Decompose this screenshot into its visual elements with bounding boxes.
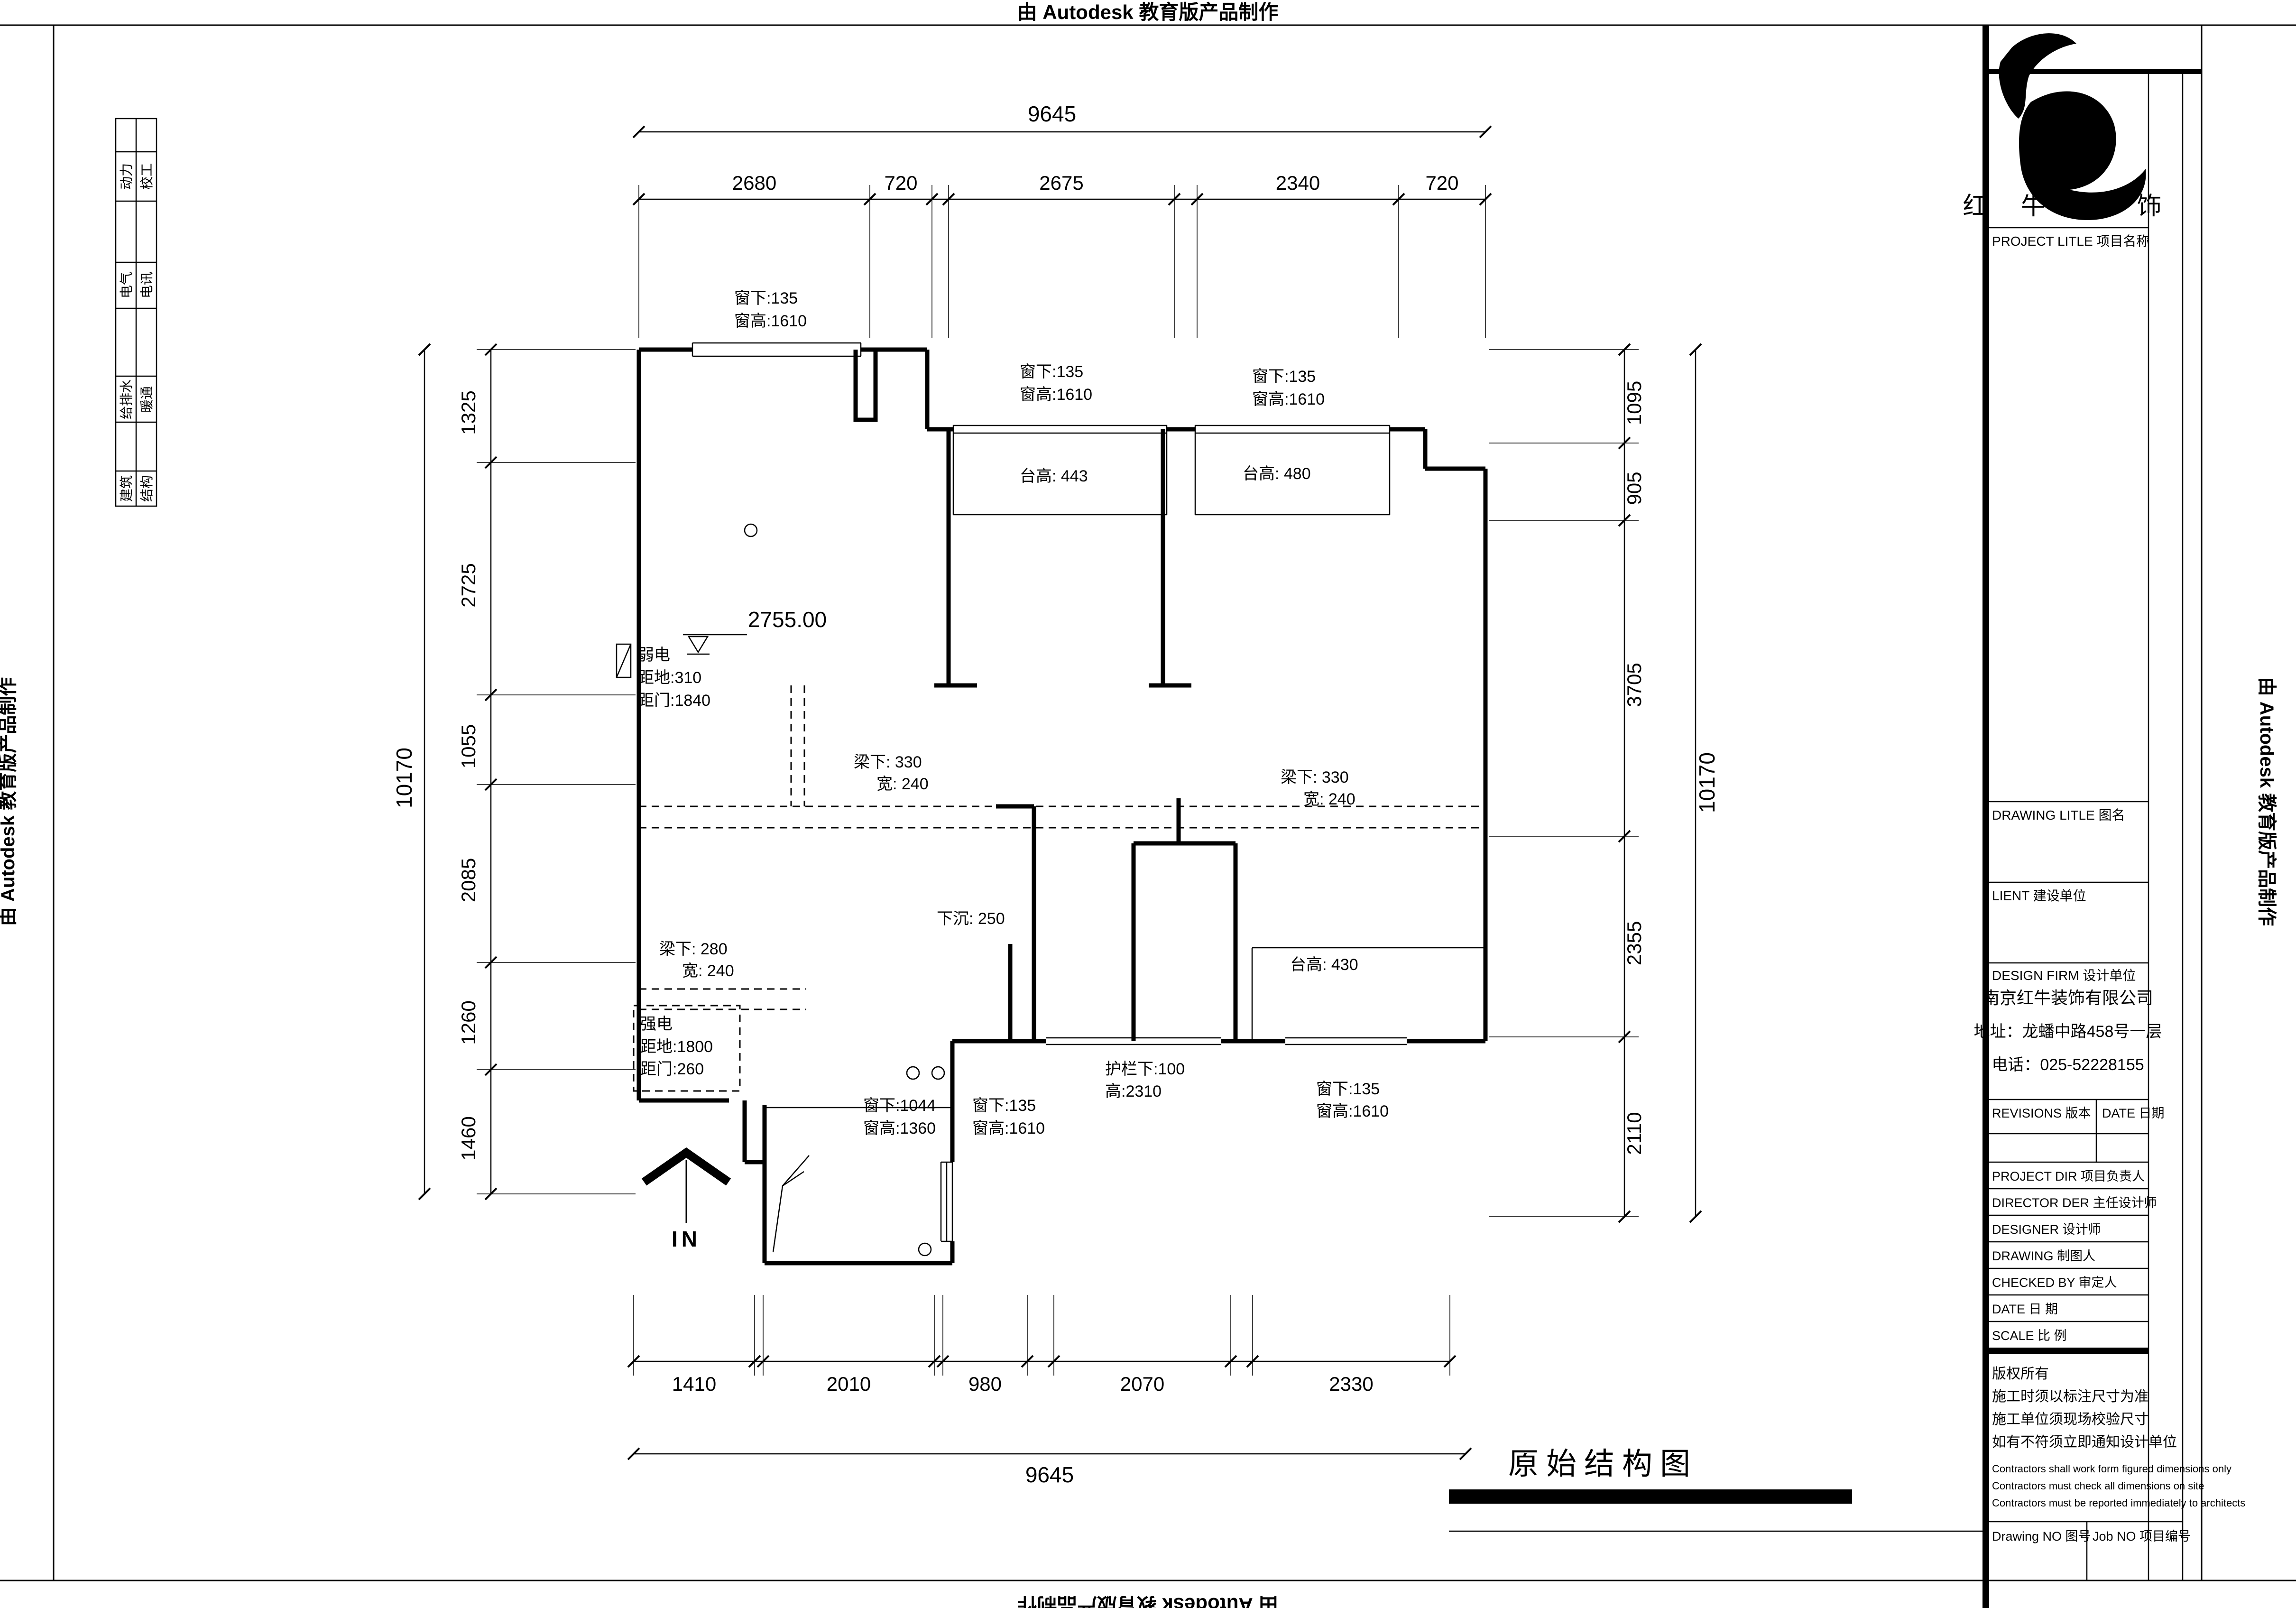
field-drawing-by: DRAWING 制图人 [1992, 1249, 2095, 1263]
company-name: 南京红牛装饰有限公司 [1982, 988, 2153, 1007]
entrance-marker: IN [644, 1153, 728, 1251]
field-design-firm: DESIGN FIRM 设计单位 [1992, 968, 2136, 983]
field-drawing-no: Drawing NO 图号 [1992, 1529, 2091, 1543]
note-cn-4: 如有不符须立即通知设计单位 [1992, 1434, 2177, 1450]
dim-value: 2675 [1039, 172, 1083, 194]
dim-value: 980 [968, 1373, 1002, 1395]
dim-value: 1055 [457, 724, 479, 768]
discipline-power: 动力 [119, 163, 134, 190]
fixture-circle [919, 1243, 931, 1256]
entrance-label: IN [672, 1227, 701, 1251]
drawing-canvas: 由 Autodesk 教育版产品制作 由 Autodesk 教育版产品制作 由 … [0, 0, 2296, 1608]
plan-annotation: 梁下: 330 [1281, 768, 1349, 786]
dim-value: 2085 [457, 858, 479, 902]
banner-left: 由 Autodesk 教育版产品制作 [0, 677, 18, 926]
banner-top: 由 Autodesk 教育版产品制作 [1017, 1, 1279, 23]
note-cn-2: 施工时须以标注尺寸为准 [1992, 1389, 2148, 1405]
plan-annotation: 梁下: 330 [854, 753, 922, 771]
company-phone: 电话：025-52228155 [1992, 1056, 2144, 1074]
field-date: DATE 日 期 [1992, 1302, 2058, 1316]
plan-annotation: 宽: 240 [682, 962, 734, 980]
field-revisions: REVISIONS 版本 [1992, 1106, 2091, 1120]
discipline-check: 校工 [139, 163, 154, 190]
fixture-circle [907, 1067, 919, 1079]
title-block: 红 牛 装 饰 PROJECT LITLE 项目名称 DRAWING LITLE… [1963, 33, 2245, 1580]
cad-sheet: 由 Autodesk 教育版产品制作 由 Autodesk 教育版产品制作 由 … [0, 0, 2296, 1608]
note-cn-1: 版权所有 [1992, 1366, 2049, 1382]
dim-value: 2340 [1276, 172, 1320, 194]
window-line [773, 1155, 809, 1252]
dim-value: 2070 [1120, 1373, 1164, 1395]
plan-annotation: 窗下:135 [1020, 363, 1083, 381]
discipline-telecom: 电讯 [139, 272, 154, 298]
dim-value: 1095 [1623, 381, 1645, 425]
dim-value: 1460 [457, 1116, 479, 1160]
dim-value: 1325 [457, 390, 479, 434]
fixture-circle [932, 1067, 944, 1079]
banner-right: 由 Autodesk 教育版产品制作 [2256, 677, 2277, 926]
note-en-3: Contractors must be reported immediately… [1992, 1497, 2245, 1509]
plan-annotation: 弱电 [638, 646, 670, 664]
field-client: LIENT 建设单位 [1992, 888, 2086, 903]
window-line [617, 644, 631, 677]
plan-annotation: 强电 [640, 1015, 673, 1033]
plan-annotation: 距门:260 [640, 1060, 704, 1078]
level-mark: 2755.00 [683, 607, 827, 654]
plan-annotation: 下沉: 250 [937, 910, 1005, 928]
plan-annotation: 窗下:135 [972, 1097, 1036, 1115]
discipline-struct: 结构 [139, 475, 154, 502]
plan-annotation: 距门:1840 [638, 692, 710, 710]
drawing-title: 原始结构图 [1508, 1447, 1698, 1481]
title-block-divider [1982, 25, 1989, 1608]
plan-annotation: 窗高:1360 [863, 1119, 936, 1137]
plan-annotation: 高:2310 [1105, 1082, 1162, 1100]
note-en-2: Contractors must check all dimensions on… [1992, 1480, 2204, 1492]
field-project-dir: PROJECT DIR 项目负责人 [1992, 1169, 2145, 1183]
plan-annotation: 窗下:1044 [863, 1097, 936, 1115]
dim-value: 905 [1623, 471, 1645, 505]
plan-annotation: 窗高:1610 [1020, 386, 1092, 404]
dim-overall-right: 10170 [1695, 752, 1719, 813]
plan-annotation: 台高: 443 [1020, 467, 1088, 485]
plan-annotation: 窗高:1610 [1316, 1102, 1389, 1120]
dim-value: 2355 [1623, 921, 1645, 965]
plan-annotation: 距地:1800 [640, 1038, 713, 1056]
dim-value: 1260 [457, 1000, 479, 1044]
discipline-hvac: 暖通 [139, 386, 154, 413]
rednbull-logo-icon [1999, 33, 2146, 220]
field-date-col: DATE 日期 [2102, 1106, 2165, 1120]
dim-value: 720 [1425, 172, 1458, 194]
dim-value: 3705 [1623, 663, 1645, 707]
dim-overall-top: 9645 [1028, 102, 1076, 126]
plan-annotation: 宽: 240 [876, 775, 929, 793]
plan-annotation: 梁下: 280 [659, 940, 728, 958]
dim-overall-bottom: 9645 [1025, 1462, 1074, 1487]
field-checked-by: CHECKED BY 审定人 [1992, 1275, 2117, 1290]
dim-value: 2680 [732, 172, 776, 194]
field-designer: DESIGNER 设计师 [1992, 1222, 2101, 1237]
floor-plan: 9645268072026752340720141020109802070233… [392, 102, 1719, 1487]
wall [856, 350, 876, 420]
level-value: 2755.00 [748, 607, 827, 632]
field-job-no: Job NO 项目编号 [2093, 1529, 2191, 1543]
dim-value: 2010 [827, 1373, 871, 1395]
plan-annotation: 窗高:1610 [734, 312, 807, 330]
dim-value: 2330 [1329, 1373, 1373, 1395]
dim-value: 2725 [457, 563, 479, 607]
company-address: 地址：龙蟠中路458号一层 [1974, 1023, 2162, 1041]
note-en-1: Contractors shall work form figured dime… [1992, 1463, 2231, 1475]
field-director: DIRECTOR DER 主任设计师 [1992, 1196, 2157, 1210]
banner-bottom: 由 Autodesk 教育版产品制作 [1017, 1594, 1279, 1608]
plan-annotation: 窗高:1610 [1252, 390, 1325, 408]
sheet-border [54, 25, 2202, 1580]
dim-value: 2110 [1623, 1112, 1645, 1155]
plan-annotation: 台高: 480 [1243, 465, 1311, 483]
plan-annotation: 宽: 240 [1303, 790, 1355, 808]
plan-annotation: 台高: 430 [1290, 956, 1358, 974]
plan-annotation: 窗下:135 [1316, 1080, 1380, 1098]
plan-annotation: 窗下:135 [1252, 368, 1316, 386]
plan-annotation: 窗高:1610 [972, 1119, 1045, 1137]
fixture-circle [745, 524, 757, 536]
drawing-title-underline [1449, 1489, 1852, 1504]
dim-value: 1410 [672, 1373, 716, 1395]
plan-annotation: 护栏下:100 [1105, 1060, 1185, 1078]
discipline-arch: 建筑 [119, 475, 134, 502]
plan-annotation: 距地:310 [638, 669, 701, 687]
note-cn-3: 施工单位须现场校验尺寸 [1992, 1412, 2148, 1427]
field-project-title: PROJECT LITLE 项目名称 [1992, 234, 2149, 249]
discipline-plumbing: 给排水 [119, 379, 134, 419]
dim-value: 720 [884, 172, 917, 194]
dim-overall-left: 10170 [392, 748, 416, 808]
brand-name: 红 牛 装 饰 [1963, 193, 2175, 220]
field-scale: SCALE 比 例 [1992, 1329, 2067, 1343]
field-drawing-title: DRAWING LITLE 图名 [1992, 808, 2125, 822]
plan-annotation: 窗下:135 [734, 289, 798, 307]
discipline-electric: 电气 [119, 272, 134, 298]
